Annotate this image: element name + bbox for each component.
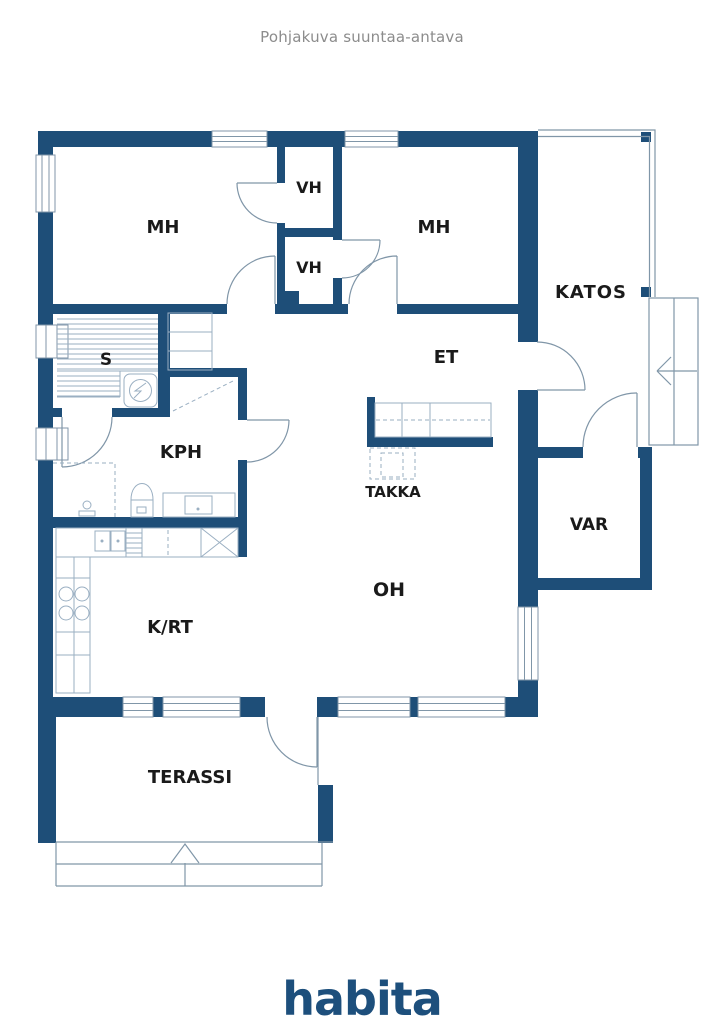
fixtures: [53, 313, 491, 693]
room-label-closet-top: VH: [296, 178, 322, 197]
shower-fixture-base: [79, 511, 95, 516]
room-label-terrace: TERASSI: [148, 767, 232, 788]
window: [36, 155, 55, 212]
wall-segment: [38, 131, 53, 155]
walls: [38, 131, 652, 843]
sauna-stove-bolt-icon: [134, 383, 146, 398]
terrace-right-wall: [318, 785, 333, 843]
closet-wall: [333, 147, 342, 240]
storage-door-swing: [583, 393, 637, 447]
living-room-window: [338, 697, 410, 717]
refrigerator-mark: [201, 528, 238, 557]
appliance-space-mark: [173, 381, 233, 411]
closet-wall-step: [285, 291, 299, 305]
room-label-fireplace: TAKKA: [365, 483, 421, 501]
sauna-wall: [112, 408, 170, 417]
terrace-left-wall: [38, 717, 56, 843]
wall-segment: [398, 131, 538, 147]
fireplace-outline: [370, 448, 415, 479]
dishwasher-racks: [126, 533, 142, 553]
sink-drain: [101, 540, 104, 543]
wall-segment: [38, 358, 53, 428]
storage-wall: [638, 447, 652, 458]
toilet-bowl: [131, 484, 153, 501]
storage-wall: [640, 458, 652, 590]
wall-segment: [153, 697, 163, 717]
closet-divider-wall: [277, 228, 342, 237]
wall-segment: [275, 304, 348, 314]
room-label-porch: KATOS: [555, 282, 627, 303]
stove-burner: [75, 587, 89, 601]
storage-wall: [538, 578, 652, 590]
bedroom-left-door-swing: [227, 256, 275, 304]
stove-burner: [59, 587, 73, 601]
toilet-tank: [131, 500, 153, 517]
terrace-steps: [56, 842, 333, 886]
wall-segment: [410, 697, 418, 717]
bathroom-door-swing: [247, 420, 289, 462]
kitchen-wall: [38, 517, 245, 528]
kitchen-counter-top: [56, 528, 238, 557]
sink-drain: [117, 540, 120, 543]
wall-segment: [38, 131, 212, 147]
bathroom-window: [36, 428, 68, 460]
kitchen-counter-left: [56, 557, 90, 693]
fireplace-inner: [381, 453, 403, 477]
porch-outline-inner: [538, 137, 650, 298]
room-label-sauna: S: [100, 350, 112, 370]
toilet-lid-detail: [137, 507, 146, 513]
window: [345, 131, 398, 147]
room-label-kitchen-dining: K/RT: [147, 617, 194, 638]
floorplan-drawing: MH VH VH MH KATOS S ET KPH TAKKA VAR OH …: [0, 0, 724, 1024]
sauna-bench-lower: [57, 371, 120, 397]
bathroom-wall: [238, 460, 247, 557]
wall-segment: [267, 131, 345, 147]
sink-drain: [197, 508, 200, 511]
sauna-window: [36, 325, 68, 358]
doors: [62, 183, 637, 767]
kitchen-window: [163, 697, 240, 717]
floorplan-page: Pohjakuva suuntaa-antava: [0, 0, 724, 1024]
laundry-cabinet: [168, 313, 212, 370]
bathroom-wall: [238, 377, 247, 420]
wall-segment: [397, 304, 518, 314]
room-label-living-room: OH: [373, 579, 405, 601]
front-door-swing: [537, 342, 585, 390]
wall-segment: [518, 390, 538, 607]
closet-wall: [333, 278, 342, 304]
kitchen-counter-divisions: [56, 557, 90, 693]
room-label-closet-bottom: VH: [296, 258, 322, 277]
stove-burner: [59, 606, 73, 620]
wall-segment: [317, 697, 338, 717]
window: [212, 131, 267, 147]
wall-segment: [240, 697, 265, 717]
shower-area-mark: [53, 463, 115, 517]
sauna-wall: [38, 408, 62, 417]
wall-segment: [38, 460, 53, 717]
wall-segment: [518, 131, 538, 342]
room-label-bedroom-right: MH: [418, 217, 451, 238]
wall-segment: [38, 697, 123, 717]
closet-wall: [277, 147, 285, 183]
entry-direction-arrow: [657, 357, 697, 385]
bathroom-vanity: [163, 493, 235, 517]
storage-wall: [538, 447, 583, 458]
sauna-door-swing: [62, 417, 112, 467]
porch-outline: [538, 130, 655, 297]
room-label-bedroom-left: MH: [147, 217, 180, 238]
appliance-space: [142, 528, 168, 557]
wall-segment: [505, 697, 538, 717]
living-room-window: [518, 607, 538, 680]
room-label-bathroom: KPH: [160, 442, 202, 463]
living-room-window: [418, 697, 505, 717]
bathroom-sink: [185, 496, 212, 514]
closet-top-door-swing: [237, 183, 277, 223]
terrace-door-swing: [267, 717, 317, 767]
shower-fixture-icon: [83, 501, 91, 509]
laundry-cabinet-shelves: [168, 332, 212, 351]
kitchen-window: [123, 697, 153, 717]
stove-burner: [75, 606, 89, 620]
bedroom-right-door-swing: [349, 256, 397, 304]
wardrobe-wall: [367, 437, 493, 447]
room-label-storage: VAR: [570, 515, 608, 535]
room-label-entry: ET: [434, 347, 459, 368]
habita-logo: habita: [0, 972, 724, 1024]
terrace-direction-arrow: [171, 844, 199, 886]
bathroom-wall: [167, 368, 247, 377]
